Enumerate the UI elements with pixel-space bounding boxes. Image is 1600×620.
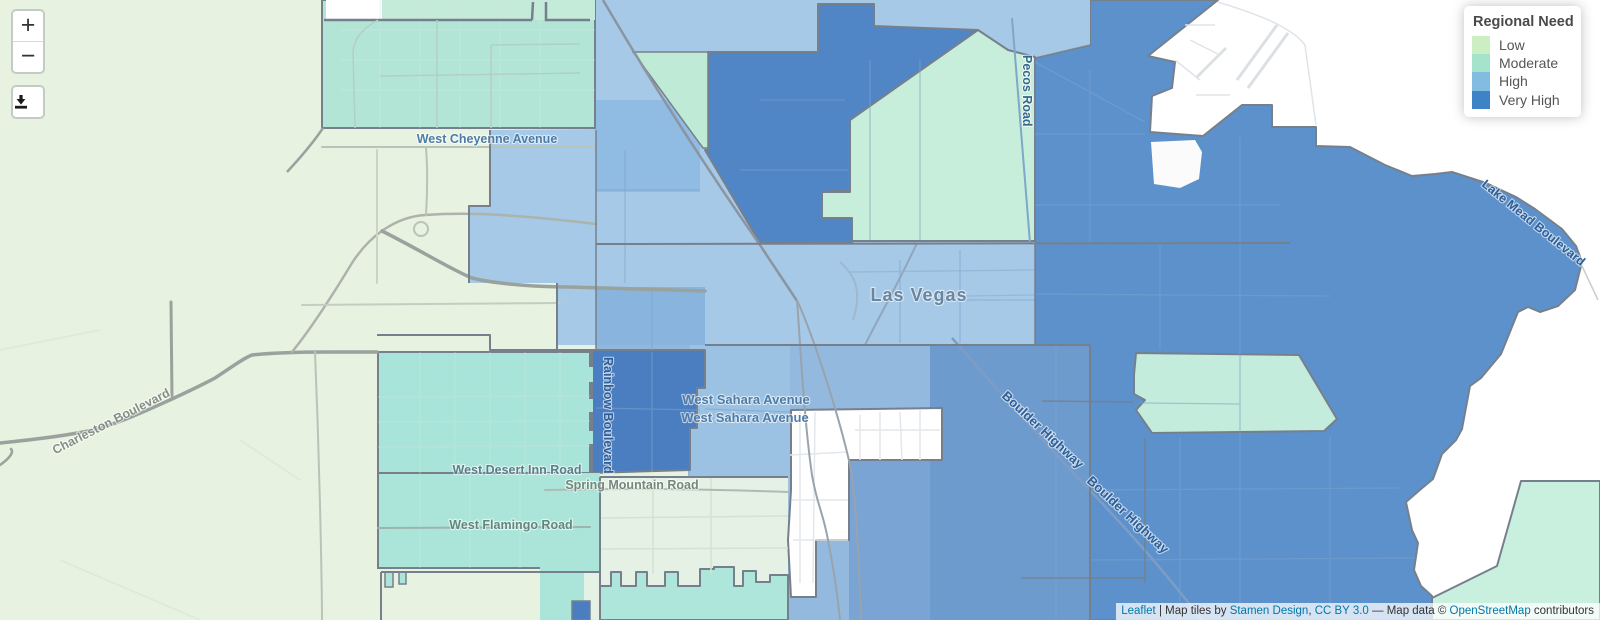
svg-text:West Desert Inn Road: West Desert Inn Road bbox=[453, 463, 582, 477]
svg-text:West Flamingo Road: West Flamingo Road bbox=[449, 518, 572, 532]
svg-text:West Sahara Avenue: West Sahara Avenue bbox=[681, 410, 808, 425]
svg-text:West Sahara Avenue: West Sahara Avenue bbox=[682, 392, 809, 407]
svg-text:Las Vegas: Las Vegas bbox=[870, 285, 967, 305]
svg-text:Pecos Road: Pecos Road bbox=[1020, 55, 1034, 127]
svg-text:West Cheyenne Avenue: West Cheyenne Avenue bbox=[417, 132, 558, 146]
svg-text:Rainbow Boulevard: Rainbow Boulevard bbox=[601, 357, 615, 474]
svg-text:Spring Mountain Road: Spring Mountain Road bbox=[565, 478, 698, 492]
